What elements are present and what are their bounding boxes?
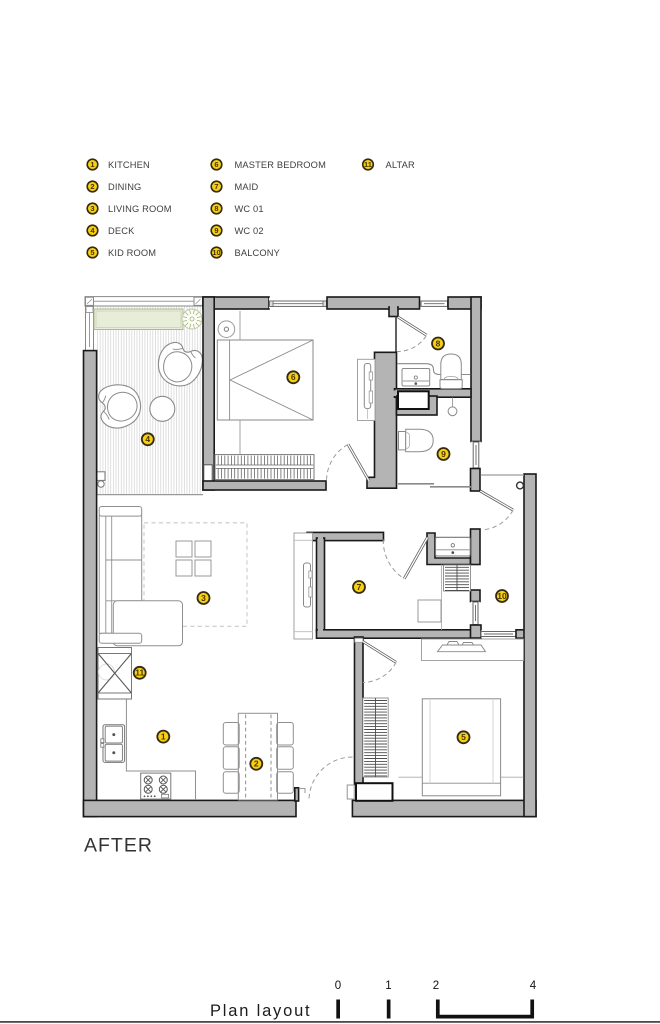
svg-text:ALTAR: ALTAR [386, 160, 415, 170]
svg-text:3: 3 [201, 593, 206, 603]
svg-text:MAID: MAID [235, 182, 259, 192]
svg-text:0: 0 [335, 980, 341, 992]
svg-text:DECK: DECK [108, 226, 135, 236]
svg-text:5: 5 [90, 248, 94, 257]
svg-text:3: 3 [90, 204, 94, 213]
svg-text:7: 7 [357, 582, 362, 592]
svg-text:11: 11 [135, 668, 144, 678]
svg-text:1: 1 [161, 732, 166, 742]
svg-text:11: 11 [364, 160, 372, 169]
svg-text:6: 6 [291, 372, 296, 382]
svg-text:5: 5 [461, 732, 466, 742]
svg-text:2: 2 [90, 182, 94, 191]
svg-text:Plan layout: Plan layout [210, 1002, 311, 1020]
svg-text:WC 01: WC 01 [235, 204, 264, 214]
svg-text:7: 7 [214, 182, 218, 191]
svg-text:KITCHEN: KITCHEN [108, 160, 150, 170]
svg-text:LIVING ROOM: LIVING ROOM [108, 204, 172, 214]
svg-text:1: 1 [90, 160, 94, 169]
svg-text:MASTER BEDROOM: MASTER BEDROOM [235, 160, 326, 170]
svg-text:1: 1 [385, 980, 391, 992]
svg-text:DINING: DINING [108, 182, 141, 192]
svg-text:10: 10 [212, 248, 220, 257]
svg-text:KID ROOM: KID ROOM [108, 248, 156, 258]
svg-text:BALCONY: BALCONY [235, 248, 280, 258]
svg-text:AFTER: AFTER [84, 835, 153, 857]
svg-text:9: 9 [214, 226, 218, 235]
svg-text:4: 4 [145, 434, 150, 444]
svg-text:9: 9 [441, 449, 446, 459]
svg-text:2: 2 [254, 759, 259, 769]
svg-text:8: 8 [436, 338, 441, 348]
svg-text:8: 8 [214, 204, 218, 213]
svg-text:6: 6 [214, 160, 218, 169]
svg-text:4: 4 [530, 980, 537, 992]
svg-text:WC 02: WC 02 [235, 226, 264, 236]
svg-text:10: 10 [497, 591, 507, 601]
svg-text:2: 2 [433, 980, 439, 992]
